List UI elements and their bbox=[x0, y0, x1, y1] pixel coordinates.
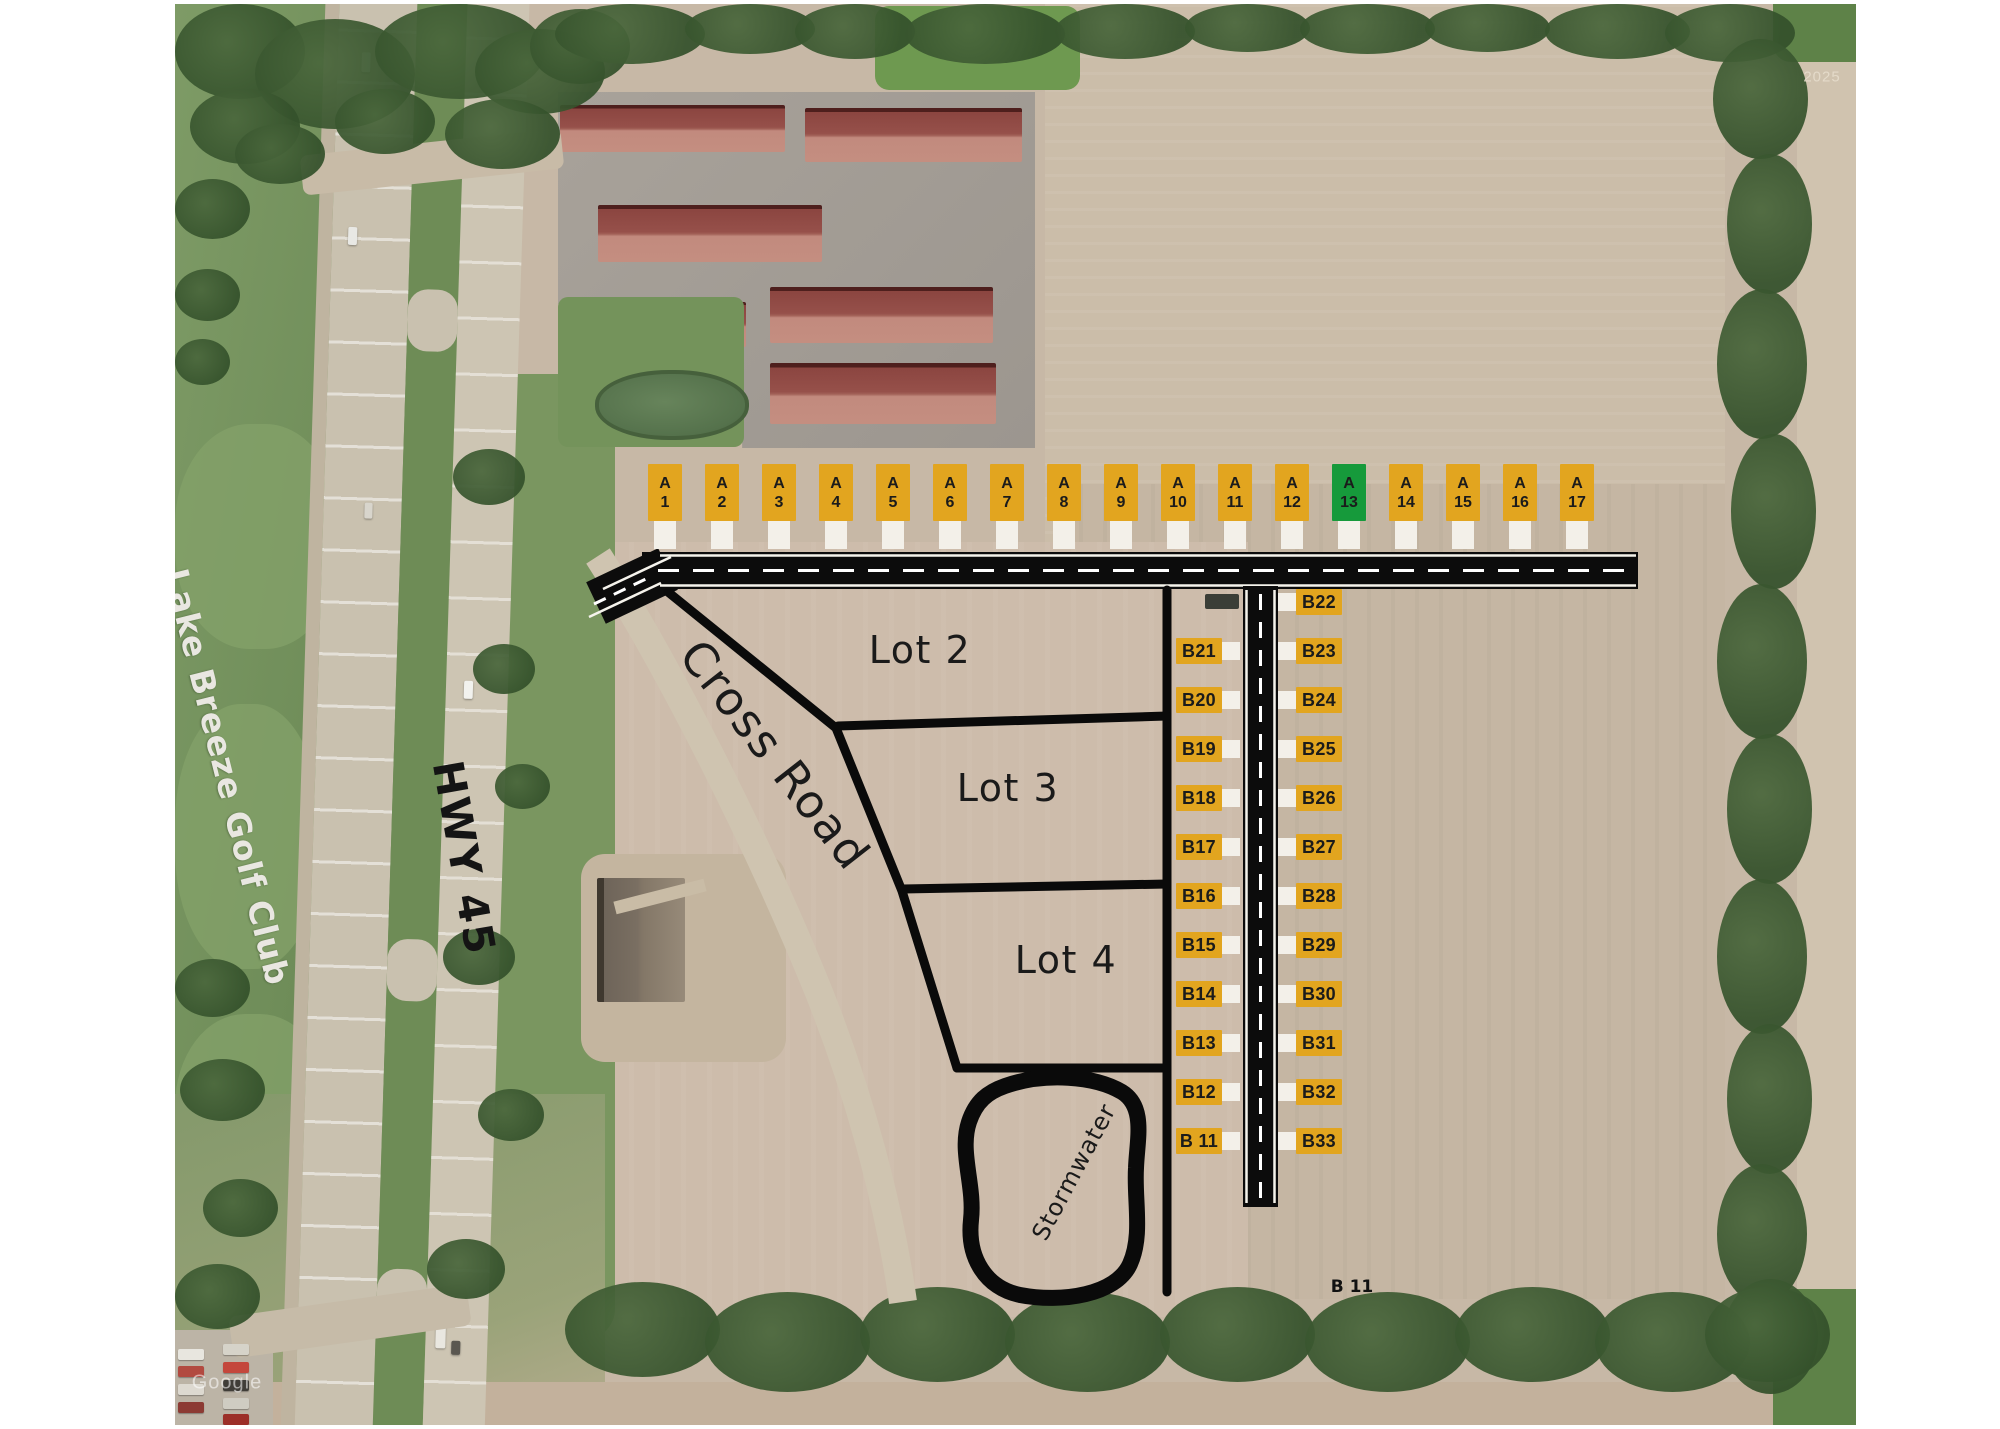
marker-number: 6 bbox=[946, 493, 955, 512]
marker-letter: A bbox=[1400, 474, 1412, 493]
tree-blob bbox=[1160, 1287, 1315, 1382]
tree-blob bbox=[335, 89, 435, 154]
marker-number: 13 bbox=[1340, 493, 1358, 512]
tree-blob bbox=[478, 1089, 544, 1141]
pond bbox=[595, 370, 749, 440]
marker-number: 7 bbox=[1003, 493, 1012, 512]
lot4-label: Lot 4 bbox=[1015, 938, 1117, 982]
lot-marker-B13[interactable]: B13 bbox=[1176, 1030, 1222, 1056]
plat-map-page: Lot 2 Lot 3 Lot 4 Cross Road Stormwater … bbox=[0, 0, 2000, 1429]
vehicle bbox=[451, 1341, 460, 1355]
marker-letter: A bbox=[659, 474, 671, 493]
lot-a-tab bbox=[768, 521, 790, 549]
lot-marker-B15[interactable]: B15 bbox=[1176, 932, 1222, 958]
lot-marker-A4[interactable]: A4 bbox=[819, 464, 853, 521]
tree-blob bbox=[175, 1264, 260, 1329]
lot-b-tab bbox=[1278, 887, 1296, 905]
marker-number: 17 bbox=[1568, 493, 1586, 512]
tree-blob bbox=[235, 124, 325, 184]
lot-a-tab bbox=[996, 521, 1018, 549]
lot-marker-B32[interactable]: B32 bbox=[1296, 1079, 1342, 1105]
storage-building-roof bbox=[770, 287, 993, 343]
marker-letter: A bbox=[773, 474, 785, 493]
lot-b-tab bbox=[1222, 985, 1240, 1003]
tree-blob bbox=[1305, 1292, 1470, 1392]
marker-letter: A bbox=[830, 474, 842, 493]
lot-marker-B18[interactable]: B18 bbox=[1176, 785, 1222, 811]
lot-b-tab bbox=[1222, 838, 1240, 856]
vehicle bbox=[464, 681, 474, 699]
tree-blob bbox=[1705, 1287, 1830, 1382]
lot-marker-B23[interactable]: B23 bbox=[1296, 638, 1342, 664]
vehicle bbox=[364, 503, 372, 519]
tree-blob bbox=[175, 959, 250, 1017]
marker-letter: A bbox=[887, 474, 899, 493]
lot-a-tab bbox=[1566, 521, 1588, 549]
lot-marker-B11[interactable]: B 11 bbox=[1176, 1128, 1222, 1154]
tree-blob bbox=[473, 644, 535, 694]
lot-b-tab bbox=[1222, 936, 1240, 954]
lot-b-tab bbox=[1278, 593, 1296, 611]
marker-number: 11 bbox=[1227, 493, 1244, 512]
lot-b-tab bbox=[1222, 887, 1240, 905]
lot-marker-A7[interactable]: A7 bbox=[990, 464, 1024, 521]
tree-blob bbox=[1717, 879, 1807, 1034]
marker-letter: A bbox=[1058, 474, 1070, 493]
tree-blob bbox=[180, 1059, 265, 1121]
median-crossover bbox=[386, 938, 438, 1002]
tree-blob bbox=[860, 1287, 1015, 1382]
tree-blob bbox=[445, 99, 560, 169]
tree-blob bbox=[1727, 734, 1812, 884]
lot-a-tab bbox=[1167, 521, 1189, 549]
parked-car bbox=[223, 1398, 249, 1409]
tree-blob bbox=[565, 1282, 720, 1377]
lot-b-tab bbox=[1222, 1083, 1240, 1101]
lot-a-tab bbox=[1053, 521, 1075, 549]
tree-blob bbox=[1727, 154, 1812, 294]
marker-letter: A bbox=[1229, 474, 1241, 493]
marker-letter: A bbox=[1514, 474, 1526, 493]
lot-a-tab bbox=[1281, 521, 1303, 549]
lot2-label: Lot 2 bbox=[869, 628, 971, 672]
marker-letter: A bbox=[716, 474, 728, 493]
lot-b-tab bbox=[1278, 985, 1296, 1003]
marker-letter: A bbox=[1172, 474, 1184, 493]
sold-lot-marker bbox=[1205, 594, 1239, 609]
stray-b11-label: B 11 bbox=[1331, 1277, 1374, 1297]
lot-a-tab bbox=[1395, 521, 1417, 549]
tree-blob bbox=[1717, 289, 1807, 439]
tree-blob bbox=[1005, 1292, 1170, 1392]
year-watermark: 2025 bbox=[1803, 69, 1840, 86]
lot-marker-B17[interactable]: B17 bbox=[1176, 834, 1222, 860]
lot-b-tab bbox=[1278, 936, 1296, 954]
parked-car bbox=[223, 1414, 249, 1425]
lot-marker-A8[interactable]: A8 bbox=[1047, 464, 1081, 521]
lot-b-tab bbox=[1278, 1083, 1296, 1101]
lot-marker-B20[interactable]: B20 bbox=[1176, 687, 1222, 713]
parked-car bbox=[178, 1402, 204, 1413]
marker-number: 4 bbox=[832, 493, 841, 512]
lot-marker-A16[interactable]: A16 bbox=[1503, 464, 1537, 521]
tree-blob bbox=[1185, 4, 1310, 52]
lot-marker-A3[interactable]: A3 bbox=[762, 464, 796, 521]
tree-blob bbox=[1731, 434, 1816, 589]
tree-blob bbox=[795, 4, 915, 59]
tree-blob bbox=[1717, 584, 1807, 739]
lot-marker-B19[interactable]: B19 bbox=[1176, 736, 1222, 762]
lot-marker-A5[interactable]: A5 bbox=[876, 464, 910, 521]
tree-blob bbox=[495, 764, 550, 809]
lot-marker-B29[interactable]: B29 bbox=[1296, 932, 1342, 958]
lot-marker-B30[interactable]: B30 bbox=[1296, 981, 1342, 1007]
google-watermark: Google bbox=[192, 1372, 263, 1395]
lot-b-tab bbox=[1222, 789, 1240, 807]
lot-marker-B24[interactable]: B24 bbox=[1296, 687, 1342, 713]
lot-marker-B31[interactable]: B31 bbox=[1296, 1030, 1342, 1056]
tree-blob bbox=[1055, 4, 1195, 59]
storage-building-roof bbox=[805, 108, 1022, 162]
lot-b-tab bbox=[1278, 1034, 1296, 1052]
aerial-photo: Lot 2 Lot 3 Lot 4 Cross Road Stormwater … bbox=[175, 4, 1856, 1425]
marker-number: 9 bbox=[1117, 493, 1126, 512]
lot-a-tab bbox=[939, 521, 961, 549]
lot-b-tab bbox=[1222, 1132, 1240, 1150]
marker-number: 14 bbox=[1397, 493, 1415, 512]
tree-blob bbox=[203, 1179, 278, 1237]
lot-marker-B22[interactable]: B22 bbox=[1296, 589, 1342, 615]
lot-b-tab bbox=[1222, 1034, 1240, 1052]
tree-blob bbox=[453, 449, 525, 505]
lot-a-tab bbox=[882, 521, 904, 549]
barn-roof bbox=[597, 878, 685, 1002]
marker-number: 15 bbox=[1454, 493, 1472, 512]
lot3-label: Lot 3 bbox=[957, 766, 1059, 810]
lot-marker-B26[interactable]: B26 bbox=[1296, 785, 1342, 811]
lot-marker-B25[interactable]: B25 bbox=[1296, 736, 1342, 762]
lot-b-tab bbox=[1278, 642, 1296, 660]
tree-blob bbox=[1455, 1287, 1610, 1382]
lot-marker-A14[interactable]: A14 bbox=[1389, 464, 1423, 521]
lot-a-tab bbox=[825, 521, 847, 549]
tree-blob bbox=[1727, 1024, 1812, 1174]
lot-a-tab bbox=[1509, 521, 1531, 549]
lot-marker-A17[interactable]: A17 bbox=[1560, 464, 1594, 521]
tree-blob bbox=[1425, 4, 1550, 52]
lot-marker-A1[interactable]: A1 bbox=[648, 464, 682, 521]
lot-marker-B21[interactable]: B21 bbox=[1176, 638, 1222, 664]
marker-number: 2 bbox=[718, 493, 727, 512]
lot-marker-B16[interactable]: B16 bbox=[1176, 883, 1222, 909]
marker-letter: A bbox=[1343, 474, 1355, 493]
lot-a-tab bbox=[1224, 521, 1246, 549]
lot-b-tab bbox=[1278, 691, 1296, 709]
tree-blob bbox=[175, 179, 250, 239]
lot-marker-A10[interactable]: A10 bbox=[1161, 464, 1195, 521]
lot-a-tab bbox=[1338, 521, 1360, 549]
vehicle bbox=[348, 227, 358, 245]
lot-b-tab bbox=[1222, 691, 1240, 709]
lot-b-tab bbox=[1278, 838, 1296, 856]
marker-letter: A bbox=[1457, 474, 1469, 493]
median-crossover bbox=[407, 289, 459, 353]
marker-letter: A bbox=[1286, 474, 1298, 493]
lot-a-tab bbox=[1110, 521, 1132, 549]
lot-marker-B27[interactable]: B27 bbox=[1296, 834, 1342, 860]
lot-a-tab bbox=[711, 521, 733, 549]
tree-blob bbox=[427, 1239, 505, 1299]
lot-a-tab bbox=[654, 521, 676, 549]
marker-number: 1 bbox=[661, 493, 670, 512]
lot-b-tab bbox=[1278, 1132, 1296, 1150]
lot-marker-B14[interactable]: B14 bbox=[1176, 981, 1222, 1007]
highway-corridor bbox=[280, 4, 538, 1425]
marker-letter: A bbox=[944, 474, 956, 493]
tree-blob bbox=[175, 339, 230, 385]
lot-marker-B28[interactable]: B28 bbox=[1296, 883, 1342, 909]
parked-car bbox=[223, 1344, 249, 1355]
tree-blob bbox=[1300, 4, 1435, 54]
lot-marker-A2[interactable]: A2 bbox=[705, 464, 739, 521]
marker-letter: A bbox=[1001, 474, 1013, 493]
tree-blob bbox=[705, 1292, 870, 1392]
storage-building-roof bbox=[598, 205, 822, 262]
marker-number: 10 bbox=[1169, 493, 1187, 512]
lot-marker-A15[interactable]: A15 bbox=[1446, 464, 1480, 521]
storage-building-roof bbox=[560, 105, 785, 152]
marker-letter: A bbox=[1571, 474, 1583, 493]
lot-marker-A13[interactable]: A13 bbox=[1332, 464, 1366, 521]
tree-blob bbox=[555, 4, 705, 64]
marker-letter: A bbox=[1115, 474, 1127, 493]
lot-a-tab bbox=[1452, 521, 1474, 549]
lot-marker-A12[interactable]: A12 bbox=[1275, 464, 1309, 521]
tree-blob bbox=[175, 269, 240, 321]
marker-number: 16 bbox=[1511, 493, 1529, 512]
lot-marker-A9[interactable]: A9 bbox=[1104, 464, 1138, 521]
tree-blob bbox=[905, 4, 1065, 64]
lot-b-tab bbox=[1222, 642, 1240, 660]
marker-number: 5 bbox=[889, 493, 898, 512]
storage-building-roof bbox=[770, 363, 996, 424]
parked-car bbox=[178, 1349, 204, 1360]
lot-b-tab bbox=[1222, 740, 1240, 758]
marker-number: 8 bbox=[1060, 493, 1069, 512]
lot-b-tab bbox=[1278, 740, 1296, 758]
tree-blob bbox=[1713, 39, 1808, 159]
lot-marker-A11[interactable]: A11 bbox=[1218, 464, 1252, 521]
field-top-right bbox=[1045, 4, 1725, 564]
marker-number: 3 bbox=[775, 493, 784, 512]
lot-marker-B12[interactable]: B12 bbox=[1176, 1079, 1222, 1105]
lot-marker-B33[interactable]: B33 bbox=[1296, 1128, 1342, 1154]
marker-number: 12 bbox=[1283, 493, 1301, 512]
lot-marker-A6[interactable]: A6 bbox=[933, 464, 967, 521]
lot-b-tab bbox=[1278, 789, 1296, 807]
